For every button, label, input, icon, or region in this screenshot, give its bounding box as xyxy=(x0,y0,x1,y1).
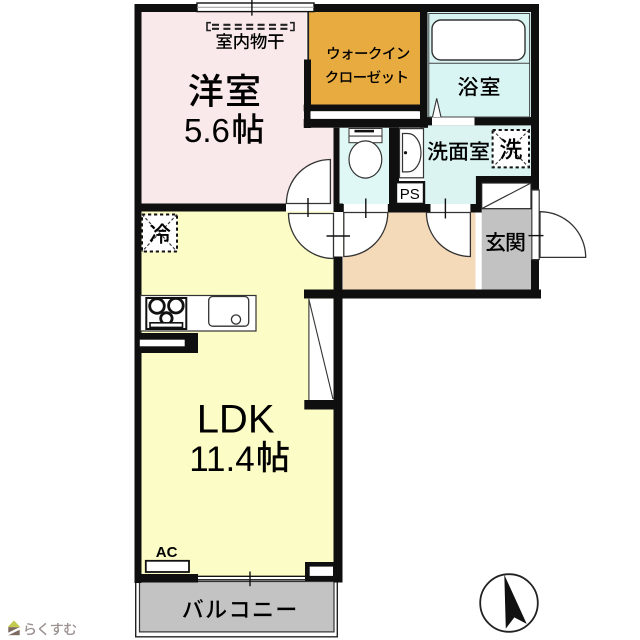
svg-text:11.4: 11.4 xyxy=(189,440,255,479)
svg-text:5.6: 5.6 xyxy=(184,112,230,149)
svg-text:AC: AC xyxy=(156,544,178,561)
svg-text:LDK: LDK xyxy=(197,398,275,442)
svg-text:PS: PS xyxy=(400,186,420,203)
